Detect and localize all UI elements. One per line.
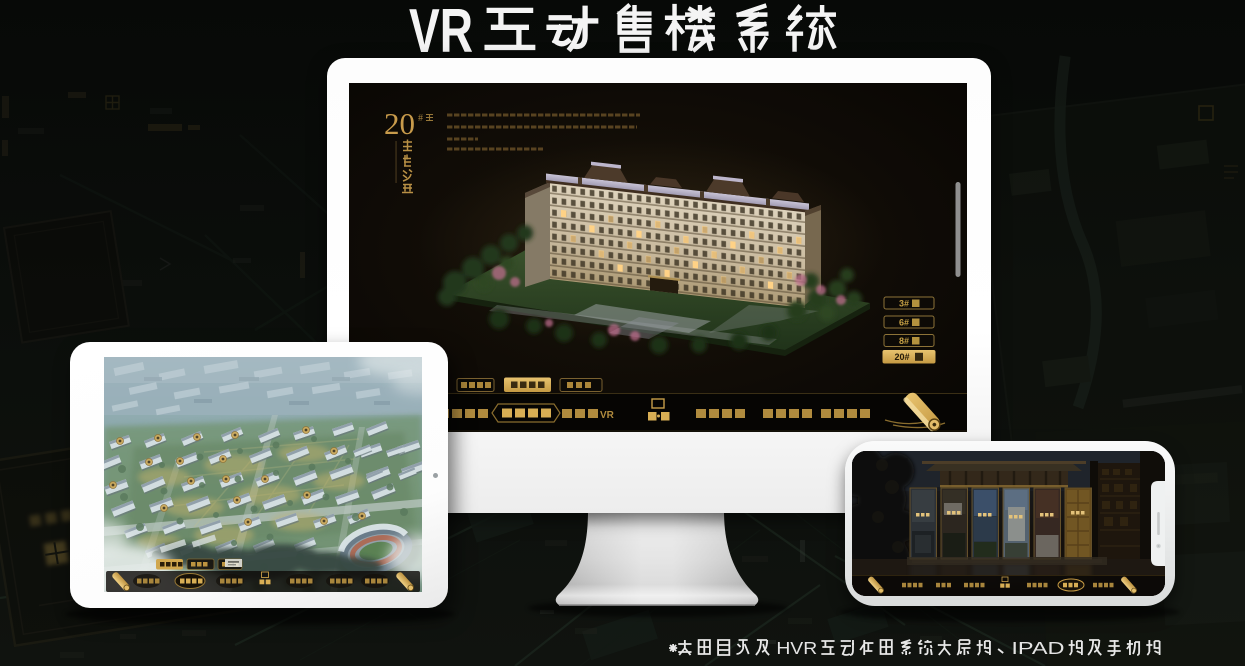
svg-text:20: 20 — [384, 106, 415, 141]
svg-text:20#: 20# — [894, 352, 909, 362]
svg-text:8#: 8# — [899, 336, 909, 346]
svg-text:IPAD: IPAD — [1011, 638, 1064, 658]
svg-text:VR: VR — [600, 410, 615, 421]
svg-text:6#: 6# — [899, 318, 909, 328]
svg-text:#: # — [418, 113, 423, 124]
svg-text:VR: VR — [409, 0, 473, 60]
svg-text:HVR: HVR — [776, 638, 817, 658]
svg-text:3#: 3# — [899, 299, 909, 309]
